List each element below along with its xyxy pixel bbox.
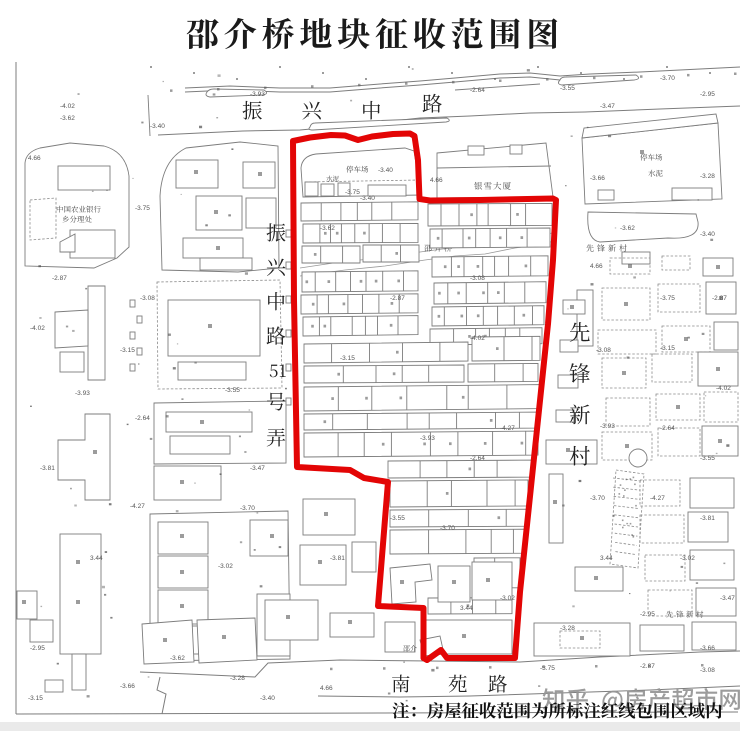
svg-text:-2.87: -2.87 [640, 663, 655, 670]
svg-text:-3.28: -3.28 [230, 675, 245, 682]
svg-text:-4.02: -4.02 [470, 335, 485, 342]
svg-text:-3.47: -3.47 [720, 595, 735, 602]
svg-text:-4.27: -4.27 [650, 495, 665, 502]
svg-text:-3.70: -3.70 [660, 75, 675, 82]
svg-text:-3.15: -3.15 [340, 355, 355, 362]
svg-text:-3.28: -3.28 [560, 625, 575, 632]
svg-text:-3.70: -3.70 [440, 525, 455, 532]
svg-text:-3.75: -3.75 [345, 189, 360, 196]
svg-text:-3.02: -3.02 [500, 595, 515, 602]
svg-text:-3.66: -3.66 [120, 683, 135, 690]
svg-text:-3.47: -3.47 [250, 465, 265, 472]
svg-text:-4.27: -4.27 [500, 425, 515, 432]
svg-text:-2.87: -2.87 [52, 275, 67, 282]
svg-text:-3.15: -3.15 [28, 695, 43, 702]
svg-text:4.66: 4.66 [28, 155, 41, 162]
svg-text:-3.93: -3.93 [600, 423, 615, 430]
svg-text:-2.64: -2.64 [470, 455, 485, 462]
svg-text:-2.64: -2.64 [660, 425, 675, 432]
svg-text:-2.64: -2.64 [135, 415, 150, 422]
svg-text:-3.55: -3.55 [700, 455, 715, 462]
svg-text:-3.93: -3.93 [420, 435, 435, 442]
svg-text:-3.66: -3.66 [590, 175, 605, 182]
svg-text:-3.62: -3.62 [60, 115, 75, 122]
svg-text:-4.27: -4.27 [130, 503, 145, 510]
svg-text:-3.55: -3.55 [390, 515, 405, 522]
svg-text:-3.70: -3.70 [240, 505, 255, 512]
svg-text:-3.93: -3.93 [75, 390, 90, 397]
svg-text:4.66: 4.66 [430, 177, 443, 184]
svg-text:-3.28: -3.28 [700, 173, 715, 180]
svg-text:-3.40: -3.40 [700, 231, 715, 238]
svg-text:-3.75: -3.75 [660, 295, 675, 302]
svg-text:-3.81: -3.81 [40, 465, 55, 472]
svg-text:-3.40: -3.40 [360, 195, 375, 202]
svg-text:-3.62: -3.62 [620, 225, 635, 232]
svg-text:-3.08: -3.08 [596, 347, 611, 354]
svg-text:-4.02: -4.02 [60, 103, 75, 110]
svg-text:-3.55: -3.55 [225, 387, 240, 394]
svg-text:-3.81: -3.81 [330, 555, 345, 562]
svg-text:-3.81: -3.81 [700, 515, 715, 522]
svg-text:-3.15: -3.15 [660, 345, 675, 352]
svg-text:-3.02: -3.02 [218, 563, 233, 570]
svg-text:-4.02: -4.02 [716, 385, 731, 392]
svg-text:-3.08: -3.08 [140, 295, 155, 302]
svg-text:-3.08: -3.08 [470, 275, 485, 282]
svg-text:-3.55: -3.55 [560, 85, 575, 92]
svg-text:3.44: 3.44 [460, 605, 473, 612]
svg-text:-2.95: -2.95 [640, 611, 655, 618]
svg-text:-3.70: -3.70 [590, 495, 605, 502]
svg-text:3.44: 3.44 [90, 555, 103, 562]
svg-text:-3.62: -3.62 [170, 655, 185, 662]
svg-text:-2.87: -2.87 [390, 295, 405, 302]
svg-text:3.44: 3.44 [600, 555, 613, 562]
svg-text:-3.62: -3.62 [320, 225, 335, 232]
svg-text:-3.40: -3.40 [378, 167, 393, 174]
svg-text:-3.75: -3.75 [135, 205, 150, 212]
svg-text:-3.15: -3.15 [120, 347, 135, 354]
svg-text:-2.95: -2.95 [30, 645, 45, 652]
svg-text:4.66: 4.66 [590, 263, 603, 270]
svg-text:-3.40: -3.40 [260, 695, 275, 702]
svg-text:-3.40: -3.40 [150, 123, 165, 130]
svg-text:-3.08: -3.08 [700, 667, 715, 674]
svg-text:-3.93: -3.93 [250, 91, 265, 98]
svg-text:4.66: 4.66 [320, 685, 333, 692]
svg-text:-2.64: -2.64 [470, 87, 485, 94]
svg-text:-2.95: -2.95 [700, 91, 715, 98]
svg-text:-2.87: -2.87 [712, 295, 727, 302]
svg-text:-3.47: -3.47 [600, 103, 615, 110]
svg-text:-3.75: -3.75 [540, 665, 555, 672]
svg-text:-4.02: -4.02 [30, 325, 45, 332]
svg-text:-3.02: -3.02 [680, 555, 695, 562]
svg-text:-3.66: -3.66 [700, 645, 715, 652]
